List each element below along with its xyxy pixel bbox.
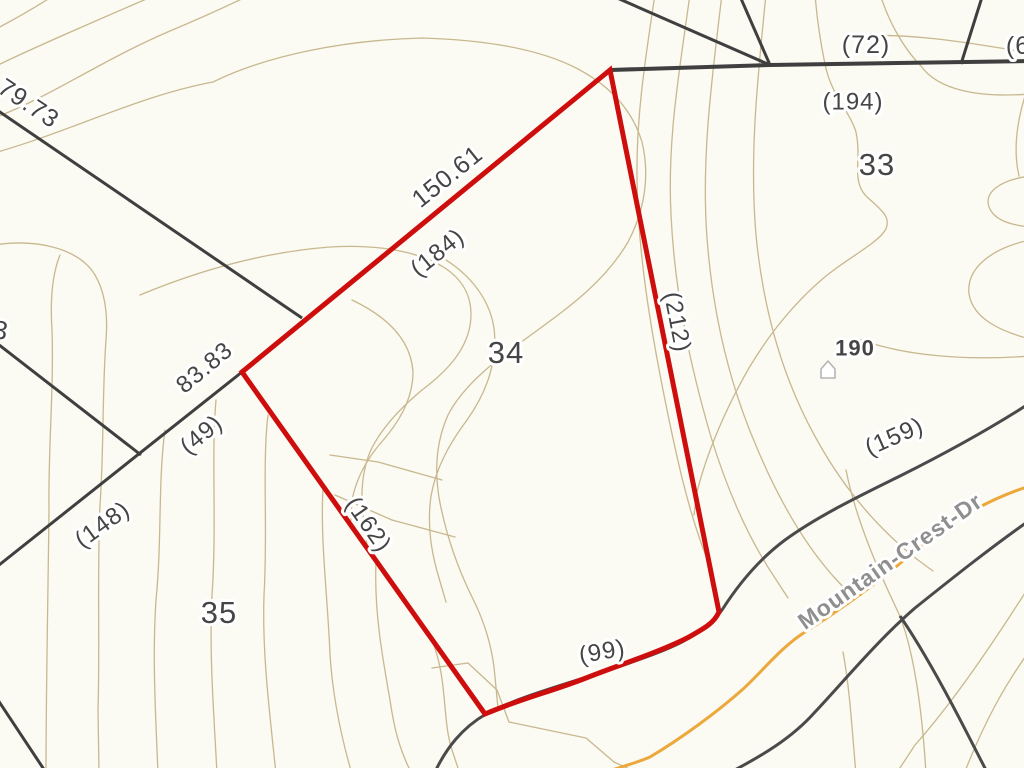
map-label-dim-6-clipped: (6	[1006, 32, 1024, 60]
map-label-dim-72: (72)	[842, 31, 890, 59]
road-layer	[434, 403, 1024, 768]
boundary-line-corner-stub	[0, 694, 47, 768]
map-label-parcel-34: 34	[488, 335, 524, 370]
map-label-road-name: Mountain-Crest-Dr	[793, 488, 987, 635]
boundary-line-top-diag-b	[739, 0, 770, 65]
boundary-line-49-148	[0, 372, 242, 569]
map-label-parcel-33: 33	[859, 147, 895, 182]
map-label-dim-79-73: 79.73	[0, 73, 64, 134]
map-labels-layer: 79.73150.61(184)34(212)(72)(6(194)33190(…	[0, 31, 1024, 669]
boundary-line-79-73	[0, 108, 302, 318]
map-label-dim-159: (159)	[861, 412, 928, 461]
map-label-dim-148: (148)	[70, 496, 135, 554]
boundary-line-left-stub	[0, 341, 141, 455]
road-branch-line	[900, 616, 988, 768]
map-label-dim-49: (49)	[175, 409, 228, 460]
map-label-parcel-35: 35	[201, 595, 237, 630]
road-upper-edge	[434, 403, 1024, 768]
map-label-digit-3-clipped: 3	[0, 314, 11, 346]
map-label-address-190: 190	[835, 336, 875, 361]
house-icon	[821, 361, 835, 378]
map-label-dim-194: (194)	[822, 88, 883, 115]
boundary-line-top-diag-right	[961, 0, 983, 64]
parcel-map-viewport: 79.73150.61(184)34(212)(72)(6(194)33190(…	[0, 0, 1024, 768]
map-label-dim-83-83: 83.83	[171, 336, 238, 399]
parcel-map-canvas: 79.73150.61(184)34(212)(72)(6(194)33190(…	[0, 0, 1024, 768]
